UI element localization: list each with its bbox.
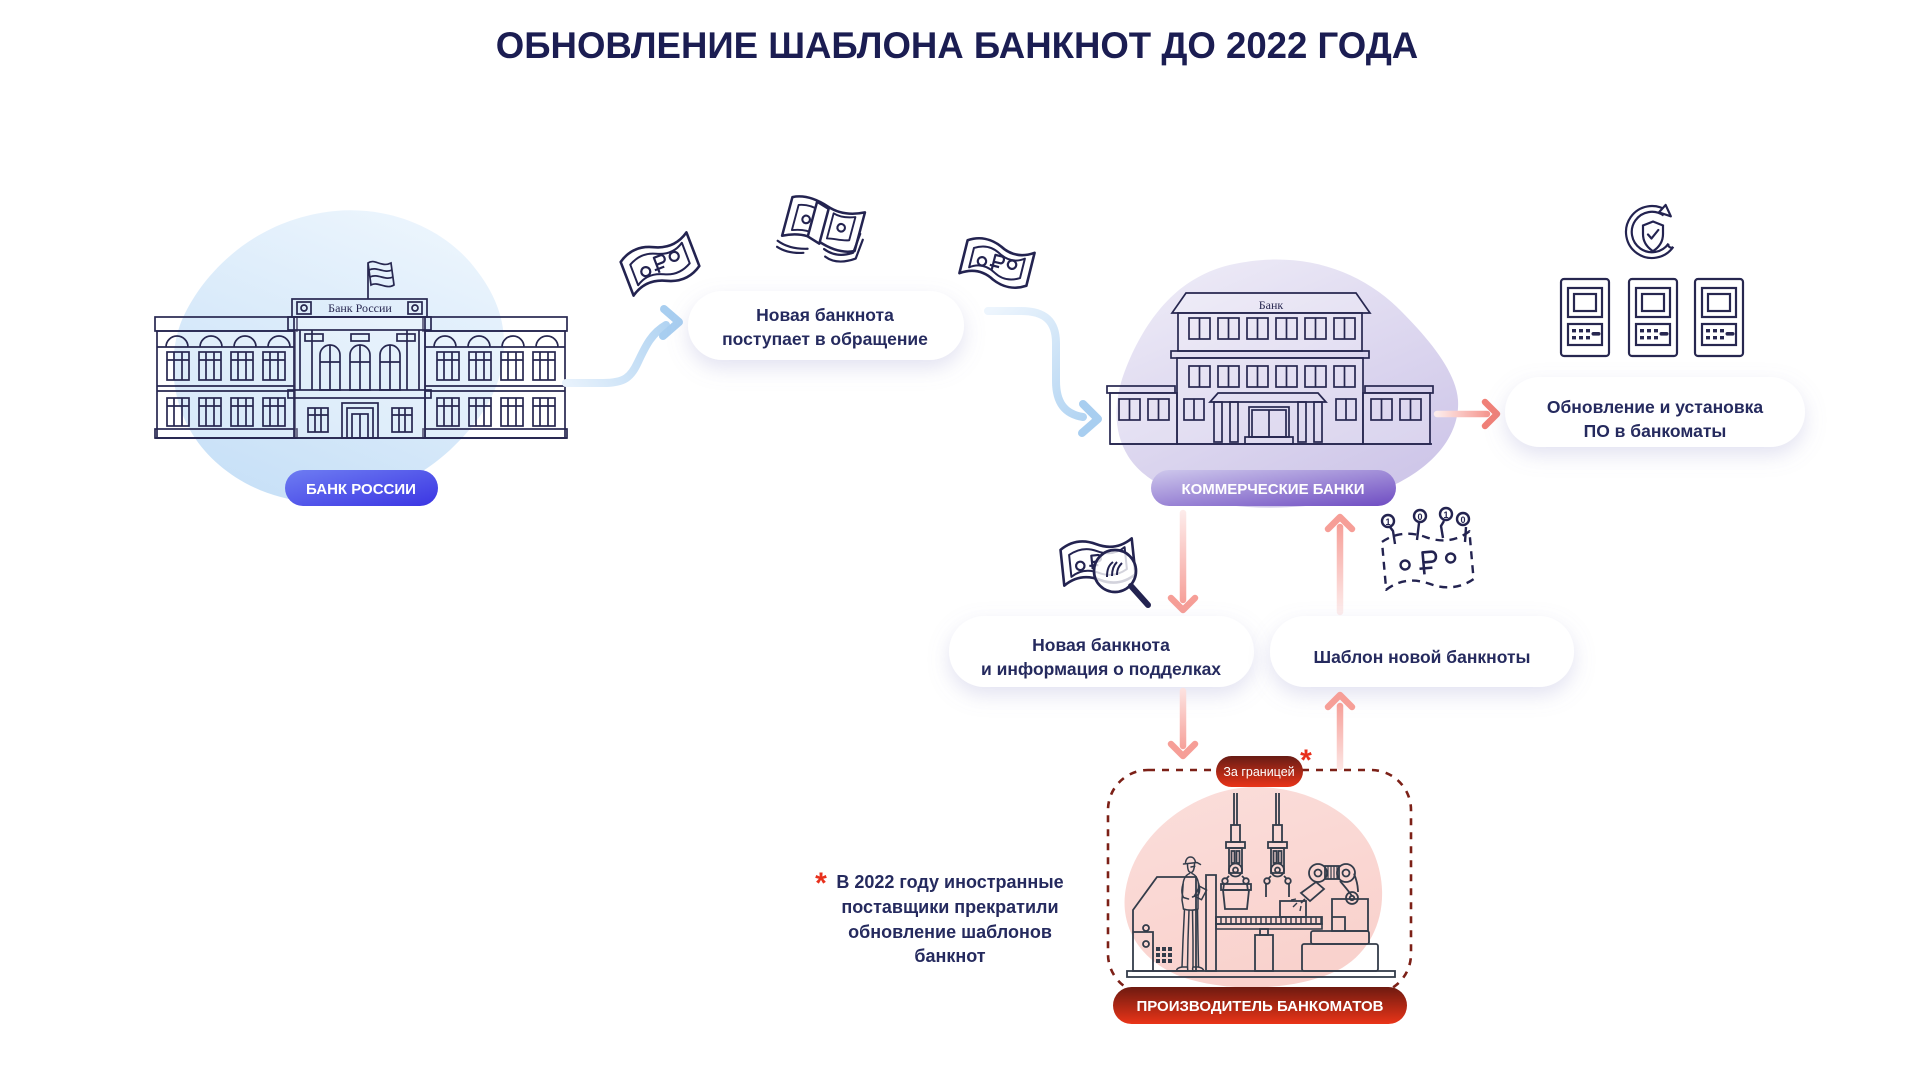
svg-text:Новая банкнота: Новая банкнота bbox=[756, 305, 894, 325]
svg-text:0: 0 bbox=[1460, 515, 1465, 525]
svg-text:банкнот: банкнот bbox=[914, 946, 985, 966]
svg-text:поступает в обращение: поступает в обращение bbox=[722, 329, 928, 349]
svg-text:1: 1 bbox=[1385, 517, 1390, 527]
svg-text:обновление шаблонов: обновление шаблонов bbox=[848, 922, 1052, 942]
svg-text:БАНК РОССИИ: БАНК РОССИИ bbox=[306, 481, 416, 498]
svg-text:В 2022 году иностранные: В 2022 году иностранные bbox=[836, 872, 1063, 892]
svg-text:ПО в банкоматы: ПО в банкоматы bbox=[1584, 421, 1727, 441]
svg-text:0: 0 bbox=[1417, 512, 1422, 522]
svg-text:ПРОИЗВОДИТЕЛЬ БАНКОМАТОВ: ПРОИЗВОДИТЕЛЬ БАНКОМАТОВ bbox=[1136, 998, 1383, 1015]
svg-text:Обновление и установка: Обновление и установка bbox=[1547, 397, 1763, 417]
svg-text:Банк России: Банк России bbox=[328, 301, 392, 315]
svg-text:Новая банкнота: Новая банкнота bbox=[1032, 635, 1170, 655]
svg-text:Банк: Банк bbox=[1259, 298, 1284, 312]
svg-text:ОБНОВЛЕНИЕ ШАБЛОНА БАНКНОТ ДО: ОБНОВЛЕНИЕ ШАБЛОНА БАНКНОТ ДО 2022 ГОДА bbox=[496, 25, 1418, 66]
svg-text:Шаблон новой банкноты: Шаблон новой банкноты bbox=[1313, 647, 1530, 667]
svg-text:*: * bbox=[815, 867, 827, 900]
svg-text:За границей: За границей bbox=[1223, 765, 1294, 779]
svg-text:1: 1 bbox=[1443, 510, 1448, 520]
svg-text:и информация о подделках: и информация о подделках bbox=[981, 659, 1221, 679]
svg-text:КОММЕРЧЕСКИЕ БАНКИ: КОММЕРЧЕСКИЕ БАНКИ bbox=[1181, 481, 1364, 498]
svg-text:*: * bbox=[1300, 744, 1312, 777]
svg-text:поставщики прекратили: поставщики прекратили bbox=[841, 897, 1058, 917]
